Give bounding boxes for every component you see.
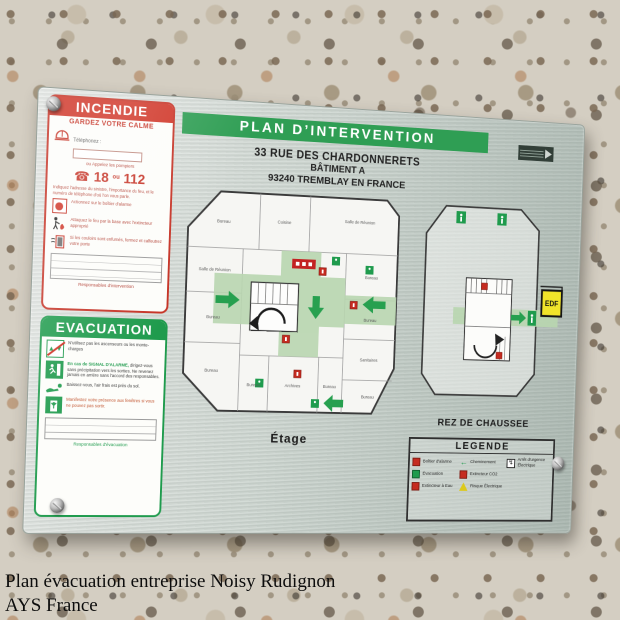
staircase: [249, 282, 299, 332]
window-signal-icon: [43, 396, 63, 413]
etage-label: Étage: [173, 429, 400, 447]
phone-label: Téléphonez :: [73, 137, 101, 145]
screw-bottom-right: [552, 457, 565, 471]
evacuation-row-3: Baissez-vous, l'air frais est près du so…: [67, 382, 140, 389]
extinguish-fire-icon: [50, 216, 68, 232]
incendie-step-1: Actionnez sur le boîtier d'alarme: [71, 199, 132, 208]
room-label: Bureau: [363, 318, 376, 323]
rdc-label: REZ DE CHAUSSEE: [406, 416, 559, 430]
smoke-door-icon: [49, 234, 67, 250]
room-label: Cuisine: [278, 220, 292, 226]
edf-label: EDF: [545, 299, 559, 308]
legend-item: Extincteur CO2: [459, 469, 504, 480]
rdc-floor-plan: EDF: [412, 193, 568, 416]
room-label: Bureau: [204, 368, 218, 373]
incendie-panel: INCENDIE GARDEZ VOTRE CALME Téléphonez :…: [41, 94, 176, 314]
caption-line-2: AYS France: [5, 594, 335, 618]
legend-item: ↯Arrêt d'urgence Électrique: [506, 458, 550, 469]
legend-item: Risque Électrique: [459, 482, 504, 493]
rdc-central-block: [464, 278, 513, 361]
crawl-low-icon: [44, 381, 64, 393]
room-label: Bureau: [246, 382, 260, 387]
exit-running-man-icon: [44, 360, 64, 378]
photo-caption: Plan évacuation entreprise Noisy Rudigno…: [5, 570, 335, 618]
room-label: Bureau: [365, 275, 378, 280]
room-label: Archives: [285, 383, 301, 388]
incendie-step-3: Si les couloirs sont enfumés, fermez et …: [70, 235, 165, 251]
route-arrow-icon: ←: [460, 458, 468, 466]
stamp-text-lines: [520, 149, 544, 157]
no-elevator-icon: ▲▼: [45, 339, 65, 357]
caption-line-1: Plan évacuation entreprise Noisy Rudigno…: [5, 570, 335, 594]
evacuation-row-4: Manifestez votre présence aux fenêtres s…: [66, 397, 160, 410]
evacuation-footer: Responsables d'évacuation: [38, 441, 162, 448]
room-label: Sanitaires: [360, 358, 378, 363]
room-label: Bureau: [361, 395, 374, 400]
legend-item: ←Cheminement: [460, 457, 505, 468]
co2-extinguisher-icon: [459, 470, 467, 478]
technical-label-box: [292, 259, 316, 270]
room-label: Bureau: [206, 314, 220, 319]
evacuation-row-1: N'utilisez pas les ascenseurs ou les mon…: [68, 340, 162, 354]
electrical-hazard-icon: [459, 483, 468, 491]
stamp-triangle-icon: [545, 150, 552, 160]
phone-icon: ☎: [74, 169, 90, 183]
alarm-box-icon: [412, 458, 420, 467]
legend-panel: LEGENDE Boîtier d'alarme Évacuation Exti…: [406, 437, 555, 522]
evacuation-icon: [412, 470, 420, 479]
fire-helmet-icon: [53, 127, 71, 143]
number-18: 18: [93, 169, 109, 186]
room-label: Bureau: [323, 384, 337, 389]
emergency-stop-icon: ↯: [507, 458, 516, 467]
legend-item: Boîtier d'alarme: [412, 457, 457, 468]
number-separator: ou: [113, 175, 120, 181]
evacuation-write-in-lines: [44, 417, 157, 441]
water-extinguisher-icon: [411, 482, 419, 490]
alarm-button-icon: [50, 198, 68, 214]
edf-box: EDF: [539, 286, 562, 316]
manufacturer-stamp: [518, 145, 554, 162]
evacuation-panel: EVACUATION ▲▼ N'utilisez pas les ascense…: [34, 315, 168, 517]
terrazzo-wall-photo: PLAN D’INTERVENTION 33 RUE DES CHARDONNE…: [0, 0, 620, 620]
number-112: 112: [123, 170, 145, 187]
incendie-step-2: Attaquez le feu par la base avec l'extin…: [70, 217, 165, 233]
legend-item: Extincteur à Eau: [411, 481, 456, 492]
rdc-exit-icon-right: [527, 311, 536, 326]
responders-write-in-lines: [50, 253, 163, 283]
etage-floor-plan: Bureau Cuisine Salle de Réunion Salle de…: [174, 176, 409, 426]
room-label: Bureau: [217, 218, 231, 224]
legend-item: Évacuation: [412, 469, 457, 480]
evacuation-header: EVACUATION: [42, 317, 166, 340]
intervention-sign-plate: PLAN D’INTERVENTION 33 RUE DES CHARDONNE…: [22, 86, 585, 534]
sign-title: PLAN D’INTERVENTION: [239, 118, 435, 147]
